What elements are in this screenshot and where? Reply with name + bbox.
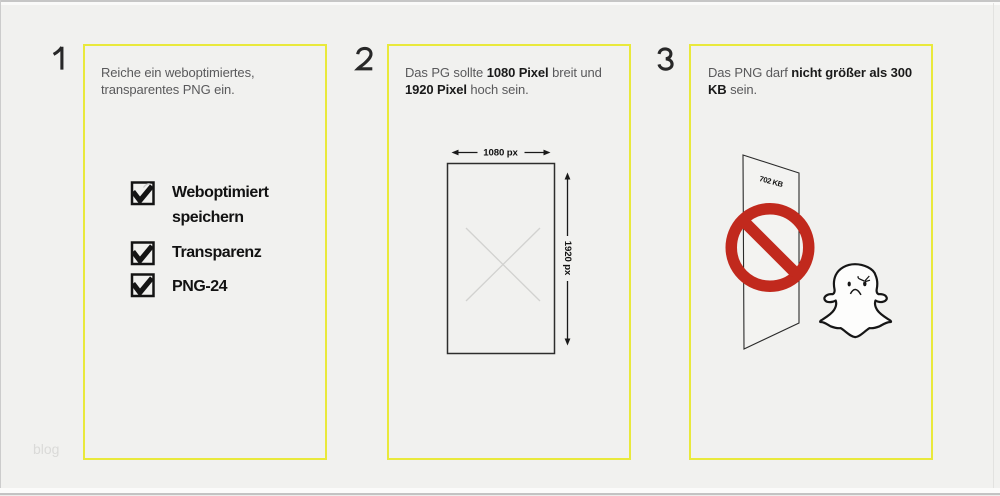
svg-text:1080 px: 1080 px (483, 147, 518, 158)
svg-text:1920 px: 1920 px (562, 241, 573, 276)
